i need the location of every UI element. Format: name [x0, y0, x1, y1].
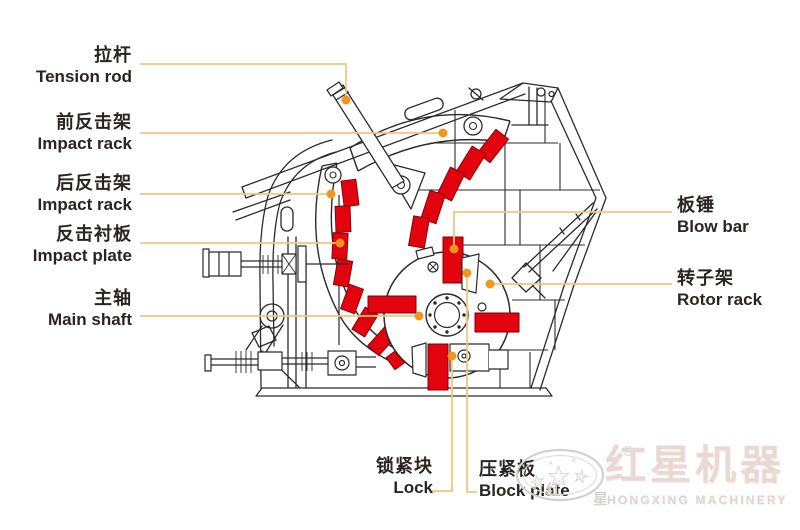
label-rotor-rack-cn: 转子架	[677, 268, 762, 289]
label-impact-plate-cn: 反击衬板	[33, 224, 132, 245]
label-lock-cn: 锁紧块	[376, 456, 433, 477]
star-icon: ★	[529, 473, 547, 493]
label-impact-plate-en: Impact plate	[33, 245, 132, 266]
label-impact-rack-front: 前反击架 Impact rack	[38, 112, 133, 154]
label-impact-rack-front-cn: 前反击架	[38, 112, 133, 133]
label-impact-rack-rear-en: Impact rack	[38, 194, 133, 215]
label-lock: 锁紧块 Lock	[376, 456, 433, 498]
label-impact-rack-rear-cn: 后反击架	[38, 173, 133, 194]
label-rotor-rack-en: Rotor rack	[677, 289, 762, 310]
brand-logo: ★ ★ ★ × × R 红 星 红星机器 HONGXING MACHINERY	[515, 437, 800, 525]
label-main-shaft-en: Main shaft	[48, 309, 132, 330]
sparkle-icon: ×	[548, 458, 553, 468]
label-main-shaft: 主轴 Main shaft	[48, 288, 132, 330]
diagram-page: 拉杆 Tension rod 前反击架 Impact rack 后反击架 Imp…	[0, 0, 800, 530]
label-impact-plate: 反击衬板 Impact plate	[33, 224, 132, 266]
logo-mini-char-hong: 红	[546, 479, 561, 500]
label-tension-rod: 拉杆 Tension rod	[36, 45, 132, 87]
logo-brand-cn: 红星机器	[605, 443, 785, 487]
logo-brand-en: HONGXING MACHINERY	[607, 493, 788, 507]
sparkle-icon: ×	[571, 455, 576, 465]
label-main-shaft-cn: 主轴	[48, 288, 132, 309]
rotor	[368, 237, 519, 390]
label-blow-bar-cn: 板锤	[677, 195, 749, 216]
label-lock-en: Lock	[376, 477, 433, 498]
star-icon: ★	[571, 467, 589, 487]
label-blow-bar: 板锤 Blow bar	[677, 195, 749, 237]
label-tension-rod-cn: 拉杆	[36, 45, 132, 66]
label-impact-rack-rear: 后反击架 Impact rack	[38, 173, 133, 215]
label-blow-bar-en: Blow bar	[677, 216, 749, 237]
label-impact-rack-front-en: Impact rack	[38, 133, 133, 154]
logo-mini-char-xing: 星	[593, 488, 608, 509]
label-rotor-rack: 转子架 Rotor rack	[677, 268, 762, 310]
front-liner-plates	[409, 129, 509, 248]
label-tension-rod-en: Tension rod	[36, 66, 132, 87]
